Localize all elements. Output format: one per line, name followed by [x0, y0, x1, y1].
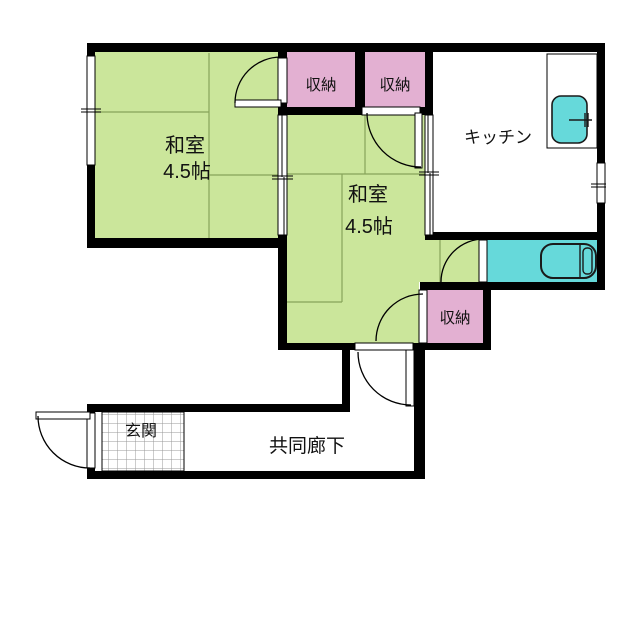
floorplan-canvas: 和室 4.5帖 和室 4.5帖 キッチン 収納 収納 収納 玄関 共同廊下	[0, 0, 640, 640]
wall-closet3-right	[483, 282, 491, 350]
entrance-door	[36, 412, 95, 468]
wall-vcorridor-right	[414, 350, 425, 479]
entrance-label: 玄関	[125, 422, 157, 440]
wall-top	[87, 43, 605, 52]
closet1-label: 収納	[305, 76, 336, 94]
kitchen-label: キッチン	[464, 128, 532, 147]
room2-label: 和室	[348, 183, 388, 206]
wall-left-stub	[87, 43, 95, 57]
wall-bath-bottom	[420, 282, 605, 290]
room2-size-label: 4.5帖	[345, 215, 393, 238]
room2-corridor-door	[355, 343, 414, 406]
floorplan-svg: 和室 4.5帖 和室 4.5帖 キッチン 収納 収納 収納 玄関 共同廊下	[0, 0, 640, 640]
wall-corridor-bottom	[87, 471, 425, 479]
wall-closet1-bottom	[287, 107, 362, 115]
wall-kitchen-bottom	[425, 232, 605, 240]
wall-room2-left	[278, 235, 287, 350]
closet3-label: 収納	[439, 309, 470, 327]
wall-closet3-bottom	[413, 343, 491, 350]
wall-left-lower	[87, 165, 95, 248]
wall-between-closets	[355, 43, 365, 115]
bathtub-icon	[541, 244, 596, 278]
wall-right-upper	[597, 43, 605, 163]
wall-room1-bottom	[87, 238, 287, 248]
corridor-label: 共同廊下	[269, 435, 345, 457]
room1-label: 和室	[165, 134, 205, 157]
room1-size-label: 4.5帖	[163, 160, 211, 183]
wall-vcorridor-left	[342, 350, 350, 412]
entrance-tile-floor	[102, 412, 184, 471]
wall-right-lower	[597, 203, 605, 290]
wall-room2-bottom	[278, 343, 355, 350]
wall-kitchen-left	[425, 43, 433, 115]
closet2-label: 収納	[379, 76, 410, 94]
wall-corridor-top	[87, 404, 350, 412]
